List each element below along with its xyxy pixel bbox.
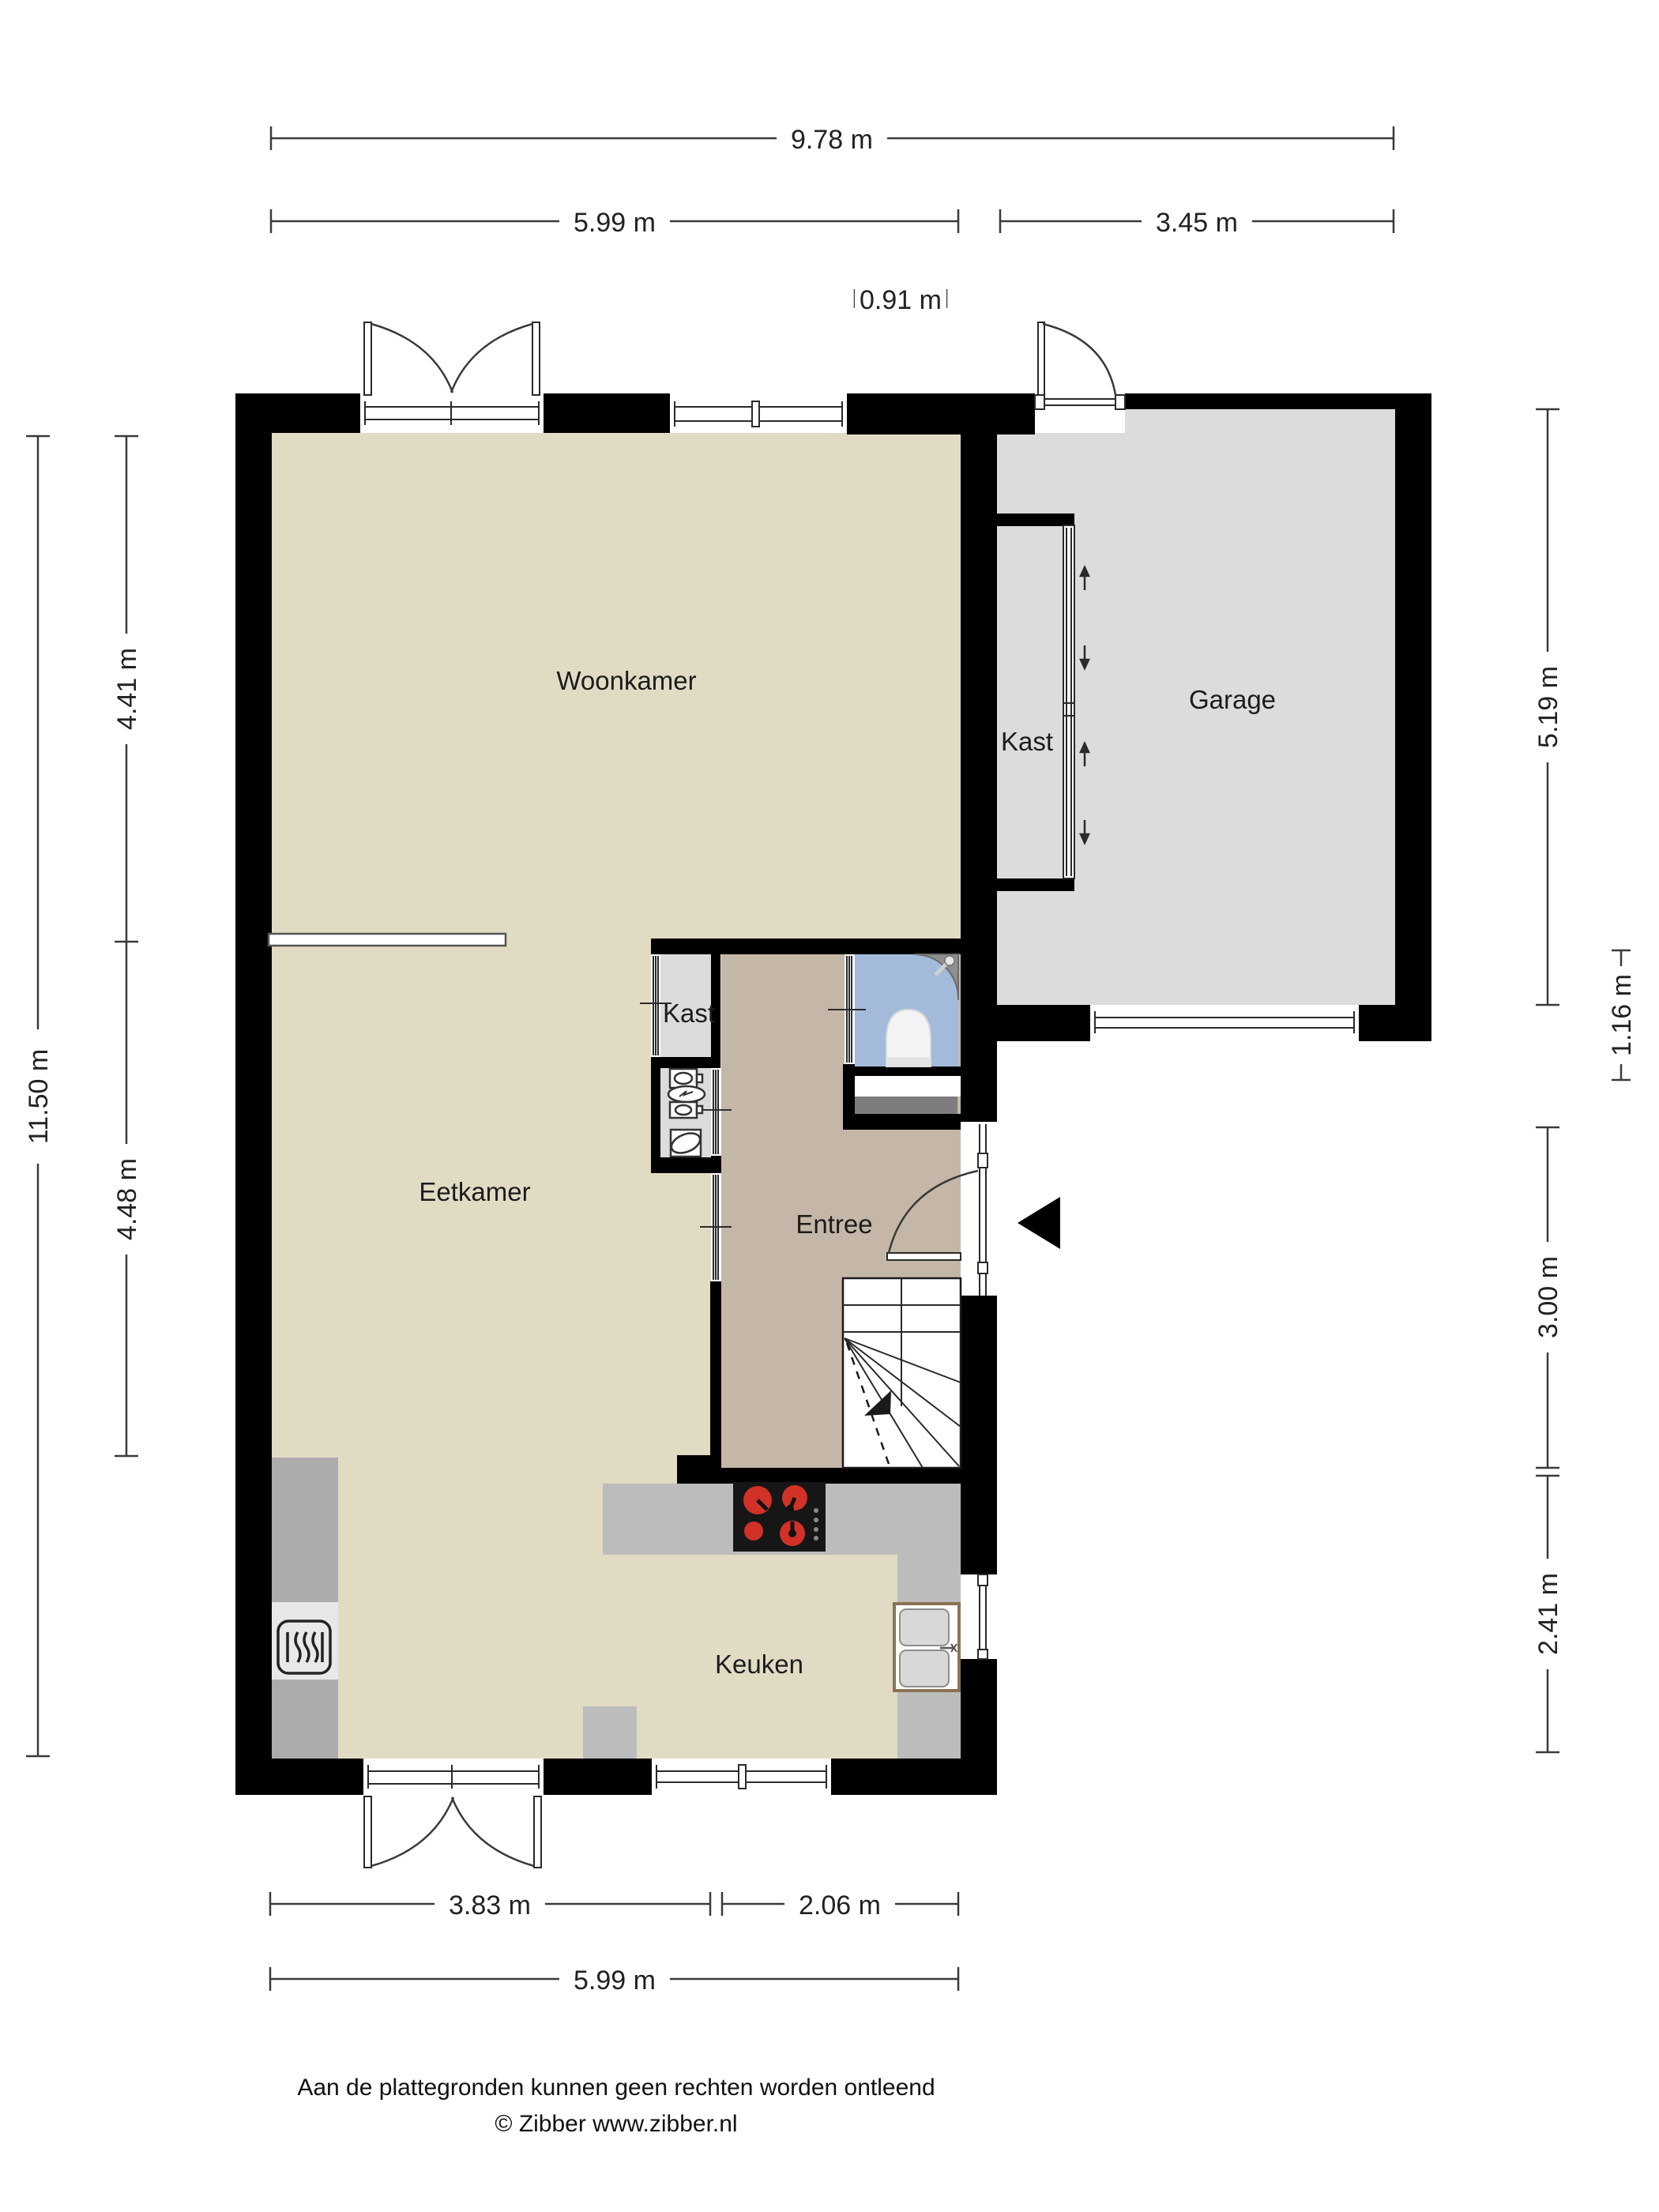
- wall-kast-garage-top: [997, 513, 1074, 526]
- svg-text:4.41 m: 4.41 m: [112, 648, 142, 730]
- kitchen-cabinet-block: [583, 1706, 637, 1759]
- dim-top-right: 3.45 m: [1000, 203, 1394, 239]
- label-garage: Garage: [1189, 685, 1276, 714]
- window-kitchen-right-icon: [961, 1574, 997, 1659]
- svg-text:11.50 m: 11.50 m: [24, 1049, 54, 1144]
- wall-meter-stub: [711, 1156, 721, 1173]
- wall-meter-bottom: [651, 1157, 721, 1173]
- label-eetkamer: Eetkamer: [419, 1177, 530, 1206]
- wall-bottom-1: [235, 1759, 363, 1795]
- wall-left: [235, 393, 272, 1795]
- label-keuken: Keuken: [715, 1650, 803, 1679]
- meter-closet-door-icon: [711, 1068, 721, 1156]
- wall-top-2: [544, 393, 670, 433]
- dim-right-entree: 3.00 m: [1530, 1127, 1565, 1468]
- wall-top-3: [847, 393, 1035, 434]
- front-door-leaf: [887, 1253, 961, 1260]
- dining-cabinet-strip: [272, 1458, 338, 1759]
- wall-kitchen: [677, 1468, 961, 1484]
- svg-text:3.83 m: 3.83 m: [449, 1890, 531, 1920]
- wall-garage-bottom-left: [997, 1005, 1090, 1041]
- dim-left-upper: 4.41 m: [109, 436, 144, 942]
- wall-right-mid: [961, 1296, 997, 1574]
- svg-text:9.78 m: 9.78 m: [791, 125, 873, 155]
- stove-icon: [733, 1482, 826, 1552]
- svg-text:5.99 m: 5.99 m: [574, 208, 656, 238]
- svg-text:2.41 m: 2.41 m: [1533, 1573, 1563, 1655]
- footer-copyright: © Zibber www.zibber.nl: [495, 2111, 737, 2137]
- dim-top-small: 0.91 m: [855, 280, 946, 315]
- stairs-icon: [843, 1278, 961, 1468]
- window-bottom-icon: [652, 1759, 831, 1795]
- svg-text:4.48 m: 4.48 m: [112, 1158, 142, 1240]
- dim-left-lower: 4.48 m: [109, 942, 144, 1456]
- label-woonkamer: Woonkamer: [556, 666, 696, 695]
- svg-text:3.00 m: 3.00 m: [1533, 1256, 1563, 1338]
- svg-text:0.91 m: 0.91 m: [860, 285, 942, 315]
- toilet-icon: [886, 1010, 931, 1066]
- double-door-bottom-icon: [363, 1759, 544, 1868]
- svg-text:3.45 m: 3.45 m: [1156, 208, 1238, 238]
- footer-disclaimer: Aan de plattegronden kunnen geen rechten…: [297, 2075, 935, 2101]
- label-kast-hal: Kast: [663, 999, 715, 1028]
- wall-top-1: [235, 393, 360, 433]
- wall-bottom-3: [831, 1759, 997, 1795]
- floorplan-page: Woonkamer Garage Kast Kast Eetkamer Entr…: [0, 0, 1659, 2212]
- label-entree: Entree: [796, 1209, 872, 1239]
- dim-bottom-right: 2.06 m: [722, 1886, 958, 1922]
- svg-text:2.06 m: 2.06 m: [799, 1890, 881, 1920]
- wall-entree-left: [710, 1281, 721, 1468]
- wall-garage-bottom-right: [1359, 1005, 1431, 1041]
- wall-garage-top: [1125, 393, 1431, 409]
- radiator-bar: [855, 1097, 957, 1114]
- niche-gap: [855, 1076, 961, 1097]
- double-door-top-icon: [360, 322, 544, 433]
- wall-bottom-2: [544, 1759, 652, 1795]
- dim-top-total: 9.78 m: [271, 120, 1394, 156]
- wall-right-upper: [961, 393, 997, 1124]
- window-top-icon: [670, 393, 847, 433]
- svg-text:5.19 m: 5.19 m: [1533, 666, 1563, 748]
- wall-meter-left: [651, 1053, 660, 1169]
- wall-kast-hal-bottom: [651, 1057, 720, 1068]
- wall-niche-left: [843, 1064, 855, 1122]
- entrance-arrow-icon: [1018, 1197, 1060, 1249]
- svg-text:1.16 m: 1.16 m: [1607, 974, 1637, 1056]
- wall-niche-bottom: [843, 1114, 961, 1130]
- window-garage-bottom-icon: [1090, 1005, 1359, 1041]
- wall-hall-top: [651, 939, 961, 954]
- wall-garage-right: [1395, 393, 1431, 1041]
- garage-door-icon: [1035, 322, 1125, 433]
- dim-right-kitchen: 2.41 m: [1530, 1476, 1565, 1752]
- floors: [272, 409, 1395, 1759]
- dim-top-left: 5.99 m: [271, 203, 958, 239]
- dim-right-garage: 5.19 m: [1530, 409, 1565, 1005]
- dim-left-total: 11.50 m: [21, 436, 55, 1756]
- wall-toilet-bottom: [843, 1066, 961, 1076]
- dim-bottom-left: 3.83 m: [270, 1886, 710, 1922]
- floorplan-canvas: Woonkamer Garage Kast Kast Eetkamer Entr…: [0, 0, 1659, 2212]
- dim-right-small: 1.16 m: [1604, 950, 1638, 1080]
- dim-bottom-total: 5.99 m: [270, 1961, 958, 1997]
- room-divider: [269, 934, 506, 946]
- sink-icon: [894, 1604, 959, 1691]
- wall-kast-garage-bottom: [997, 878, 1074, 891]
- label-kast-garage: Kast: [1001, 727, 1053, 756]
- svg-text:5.99 m: 5.99 m: [574, 1966, 656, 1996]
- footer: Aan de plattegronden kunnen geen rechten…: [297, 2075, 935, 2137]
